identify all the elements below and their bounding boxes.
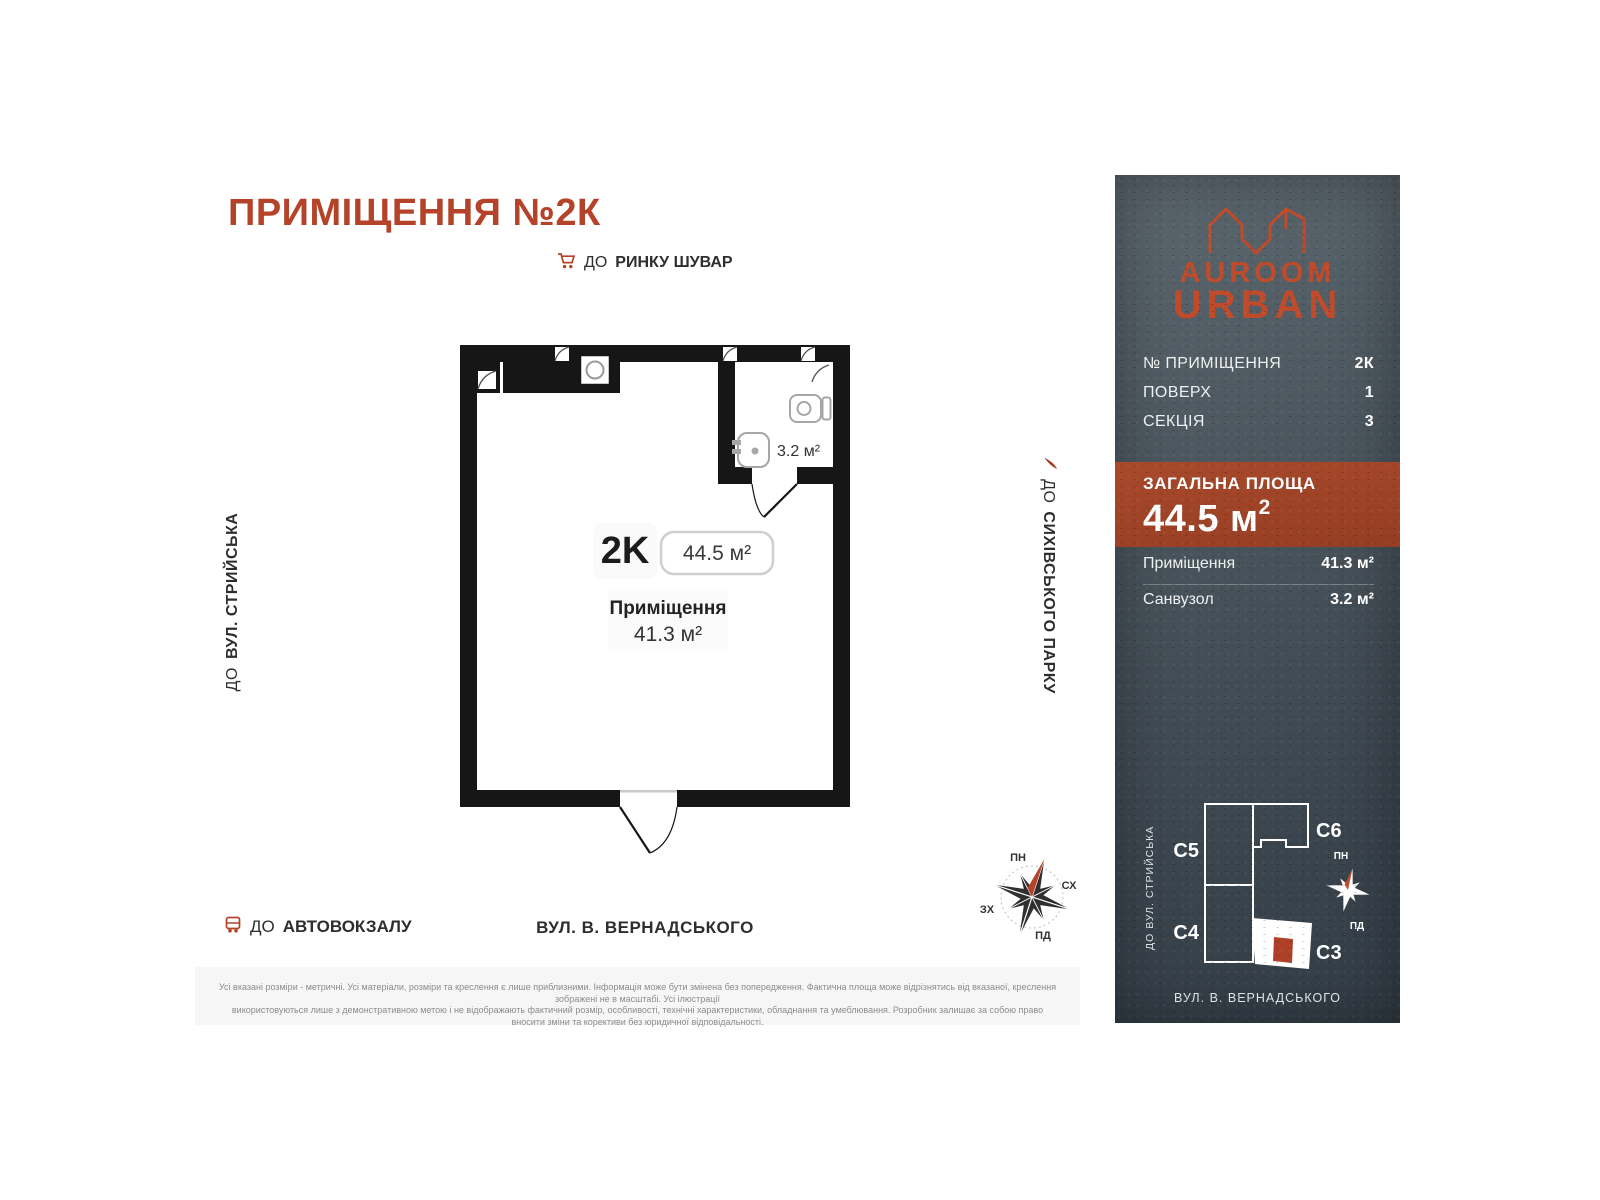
direction-market-name: РИНКУ ШУВАР [615, 254, 732, 272]
disclaimer-line-1: Усі вказані розміри - метричні. Усі мате… [215, 982, 1060, 1005]
bus-icon [224, 916, 242, 938]
direction-park-prefix: ДО [1039, 479, 1057, 503]
compass-rose: ПН СХ ЗХ ПД [955, 840, 1085, 945]
room-name: Приміщення [610, 598, 727, 619]
direction-left-street: ДО ВУЛ. СТРИЙСЬКА [224, 513, 242, 692]
area-row-room-value: 41.3 м² [1321, 555, 1374, 573]
total-area-label: 44.5 м² [683, 542, 751, 565]
minimap-compass [1322, 864, 1374, 916]
panel-bottom-street: ВУЛ. В. ВЕРНАДСЬКОГО [1115, 991, 1400, 1005]
leaf-icon [1038, 456, 1058, 471]
brand-logo-mark [1198, 203, 1318, 255]
minimap-unit-marker [1273, 937, 1293, 963]
row-floor-value: 1 [1365, 384, 1374, 402]
area-breakdown: Приміщення 41.3 м² Санвузол 3.2 м² [1143, 555, 1374, 618]
direction-park: ДО СИХІВСЬКОГО ПАРКУ [1038, 456, 1058, 694]
minimap-left-street: ДО ВУЛ. СТРИЙСЬКА [1143, 826, 1156, 950]
direction-left-name: ВУЛ. СТРИЙСЬКА [224, 513, 242, 659]
floor-plan: 3.2 м² 2K 44.5 м² Приміщення 41.3 м² [460, 345, 850, 860]
total-area-band-label: ЗАГАЛЬНА ПЛОЩА [1143, 474, 1374, 494]
row-unit-number: № ПРИМІЩЕННЯ 2К [1143, 355, 1374, 384]
divider [1143, 584, 1374, 585]
direction-bus: ДО АВТОВОКЗАЛУ [224, 916, 412, 938]
row-section-label: СЕКЦІЯ [1143, 413, 1205, 431]
direction-bus-prefix: ДО [250, 917, 275, 937]
row-unit-number-label: № ПРИМІЩЕННЯ [1143, 355, 1281, 373]
minimap-label-c4: C4 [1173, 922, 1199, 944]
compass-south-label: ПД [1035, 930, 1051, 942]
compass-west-label: ЗХ [980, 904, 995, 916]
room-area: 41.3 м² [634, 623, 702, 646]
bath-area-label: 3.2 м² [777, 443, 821, 460]
direction-market: ДО РИНКУ ШУВАР [557, 252, 733, 274]
page-title: ПРИМІЩЕННЯ №2К [228, 192, 601, 235]
vent-shaft-icon [580, 355, 610, 385]
entrance-door [620, 790, 677, 853]
disclaimer: Усі вказані розміри - метричні. Усі мате… [195, 967, 1080, 1025]
total-area-band: ЗАГАЛЬНА ПЛОЩА 44.5 м2 [1115, 462, 1400, 547]
total-area-number: 44.5 м [1143, 498, 1259, 540]
total-area-band-value: 44.5 м2 [1143, 498, 1374, 541]
total-area-sup: 2 [1259, 496, 1271, 519]
bathroom-door [752, 484, 797, 517]
page: ПРИМІЩЕННЯ №2К ДО РИНКУ ШУВАР ДО ВУЛ. СТ… [0, 0, 1600, 1200]
unit-info-rows: № ПРИМІЩЕННЯ 2К ПОВЕРХ 1 СЕКЦІЯ 3 [1143, 355, 1374, 442]
area-row-bath: Санвузол 3.2 м² [1143, 591, 1374, 618]
cart-icon [557, 252, 576, 274]
row-floor-label: ПОВЕРХ [1143, 384, 1211, 402]
row-section-value: 3 [1365, 413, 1374, 431]
minimap-label-c5: C5 [1173, 840, 1199, 862]
direction-park-name: СИХІВСЬКОГО ПАРКУ [1039, 511, 1057, 693]
bottom-street-label: ВУЛ. В. ВЕРНАДСЬКОГО [536, 918, 754, 938]
site-minimap: ДО ВУЛ. СТРИЙСЬКА C5 C6 C4 C3 ПН ПД [1115, 787, 1400, 977]
brand-name-bottom: URBAN [1115, 283, 1400, 328]
row-section: СЕКЦІЯ 3 [1143, 413, 1374, 442]
info-panel: AUROOM URBAN № ПРИМІЩЕННЯ 2К ПОВЕРХ 1 СЕ… [1115, 175, 1400, 1023]
row-floor: ПОВЕРХ 1 [1143, 384, 1374, 413]
area-row-bath-label: Санвузол [1143, 591, 1214, 609]
area-row-bath-value: 3.2 м² [1330, 591, 1374, 609]
minimap-compass-south: ПД [1350, 921, 1364, 932]
direction-bus-name: АВТОВОКЗАЛУ [283, 917, 412, 937]
sink-icon [732, 433, 769, 467]
toilet-icon [790, 395, 831, 422]
compass-north-label: ПН [1010, 852, 1026, 864]
direction-left-prefix: ДО [224, 667, 242, 691]
disclaimer-line-2: використовуються лише з демонстративною … [215, 1005, 1060, 1028]
area-row-room-label: Приміщення [1143, 555, 1235, 573]
row-unit-number-value: 2К [1355, 355, 1374, 373]
direction-market-prefix: ДО [584, 254, 607, 272]
unit-code: 2K [601, 530, 650, 572]
compass-east-label: СХ [1062, 880, 1078, 892]
minimap-label-c6: C6 [1316, 820, 1342, 842]
minimap-label-c3: C3 [1316, 942, 1342, 964]
area-row-room: Приміщення 41.3 м² [1143, 555, 1374, 582]
minimap-compass-north: ПН [1334, 851, 1348, 862]
